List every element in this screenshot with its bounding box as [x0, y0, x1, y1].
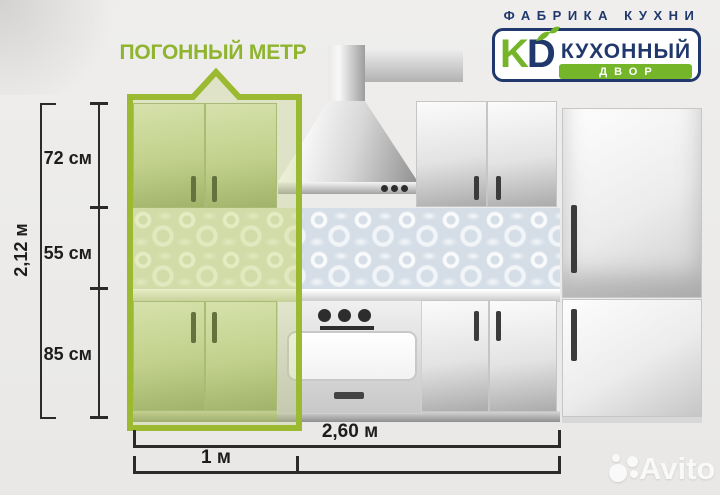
oven-handle: [334, 392, 364, 399]
stove-knob: [338, 309, 351, 322]
logo-name-bottom: ДВОР: [559, 64, 692, 79]
tall-cabinet-upper-door: [562, 108, 702, 298]
hood-chimney: [328, 45, 365, 102]
hood-buttons: [381, 185, 408, 192]
avito-logo-icon: [627, 456, 638, 467]
door-handle: [474, 311, 479, 341]
dim-cap: [40, 103, 56, 105]
avito-logo-icon: [630, 470, 638, 478]
linear-meter-width-label: 1 м: [156, 447, 276, 469]
linear-meter-label: ПОГОННЫЙ МЕТР: [112, 41, 314, 65]
tall-cabinet-lower-door: [562, 299, 702, 417]
base-cabinet-right: [420, 300, 557, 412]
dim-tick: [90, 287, 108, 290]
door-handle: [474, 176, 479, 200]
avito-label: Avito: [639, 451, 715, 487]
wall-cabinet-right: [416, 101, 557, 207]
logo-name-top: КУХОННЫЙ: [557, 40, 695, 64]
kitchen-ad-diagram: ПОГОННЫЙ МЕТР 2,12 м 72 см 55 см 85 см 2…: [0, 0, 720, 495]
dim-cap: [133, 456, 136, 473]
hood-button-dot: [391, 185, 398, 192]
backsplash-height-label: 55 см: [26, 243, 92, 264]
dim-cap: [133, 430, 136, 447]
brand-tagline: ФАБРИКА КУХНИ: [486, 8, 718, 23]
dim-tick: [90, 206, 108, 209]
stove-knob: [358, 309, 371, 322]
tall-cabinet: [562, 108, 702, 417]
door-handle: [571, 205, 577, 273]
segment-height-line: [98, 103, 100, 418]
oven-window: [287, 331, 417, 381]
tall-cabinet-base: [562, 417, 702, 423]
linear-meter-frame: [124, 64, 306, 436]
dim-tick: [296, 456, 299, 473]
avito-watermark: Avito: [606, 450, 720, 494]
base-cabinet-height-label: 85 см: [26, 344, 92, 365]
dim-cap: [558, 430, 561, 447]
hood-button-dot: [401, 185, 408, 192]
stove-knobs: [318, 309, 371, 322]
brand-logo: KD КУХОННЫЙ ДВОР: [492, 28, 701, 82]
total-width-label: 2,60 м: [270, 421, 430, 443]
door-handle: [496, 176, 501, 200]
hood-button-dot: [381, 185, 388, 192]
dim-tick: [90, 416, 108, 419]
door-handle: [571, 309, 577, 361]
dim-tick: [90, 102, 108, 105]
hood-duct: [365, 47, 463, 82]
stove-knob: [318, 309, 331, 322]
corner-shade: [0, 0, 130, 95]
avito-logo-icon: [612, 454, 620, 462]
wall-cabinet-height-label: 72 см: [26, 148, 92, 169]
door-handle: [496, 311, 501, 341]
dim-cap: [558, 456, 561, 473]
logo-letter-k: K: [500, 32, 527, 76]
linear-meter-line: [133, 471, 561, 474]
dim-cap: [40, 417, 56, 419]
stove-trim: [320, 326, 374, 330]
avito-logo-icon: [609, 464, 627, 482]
